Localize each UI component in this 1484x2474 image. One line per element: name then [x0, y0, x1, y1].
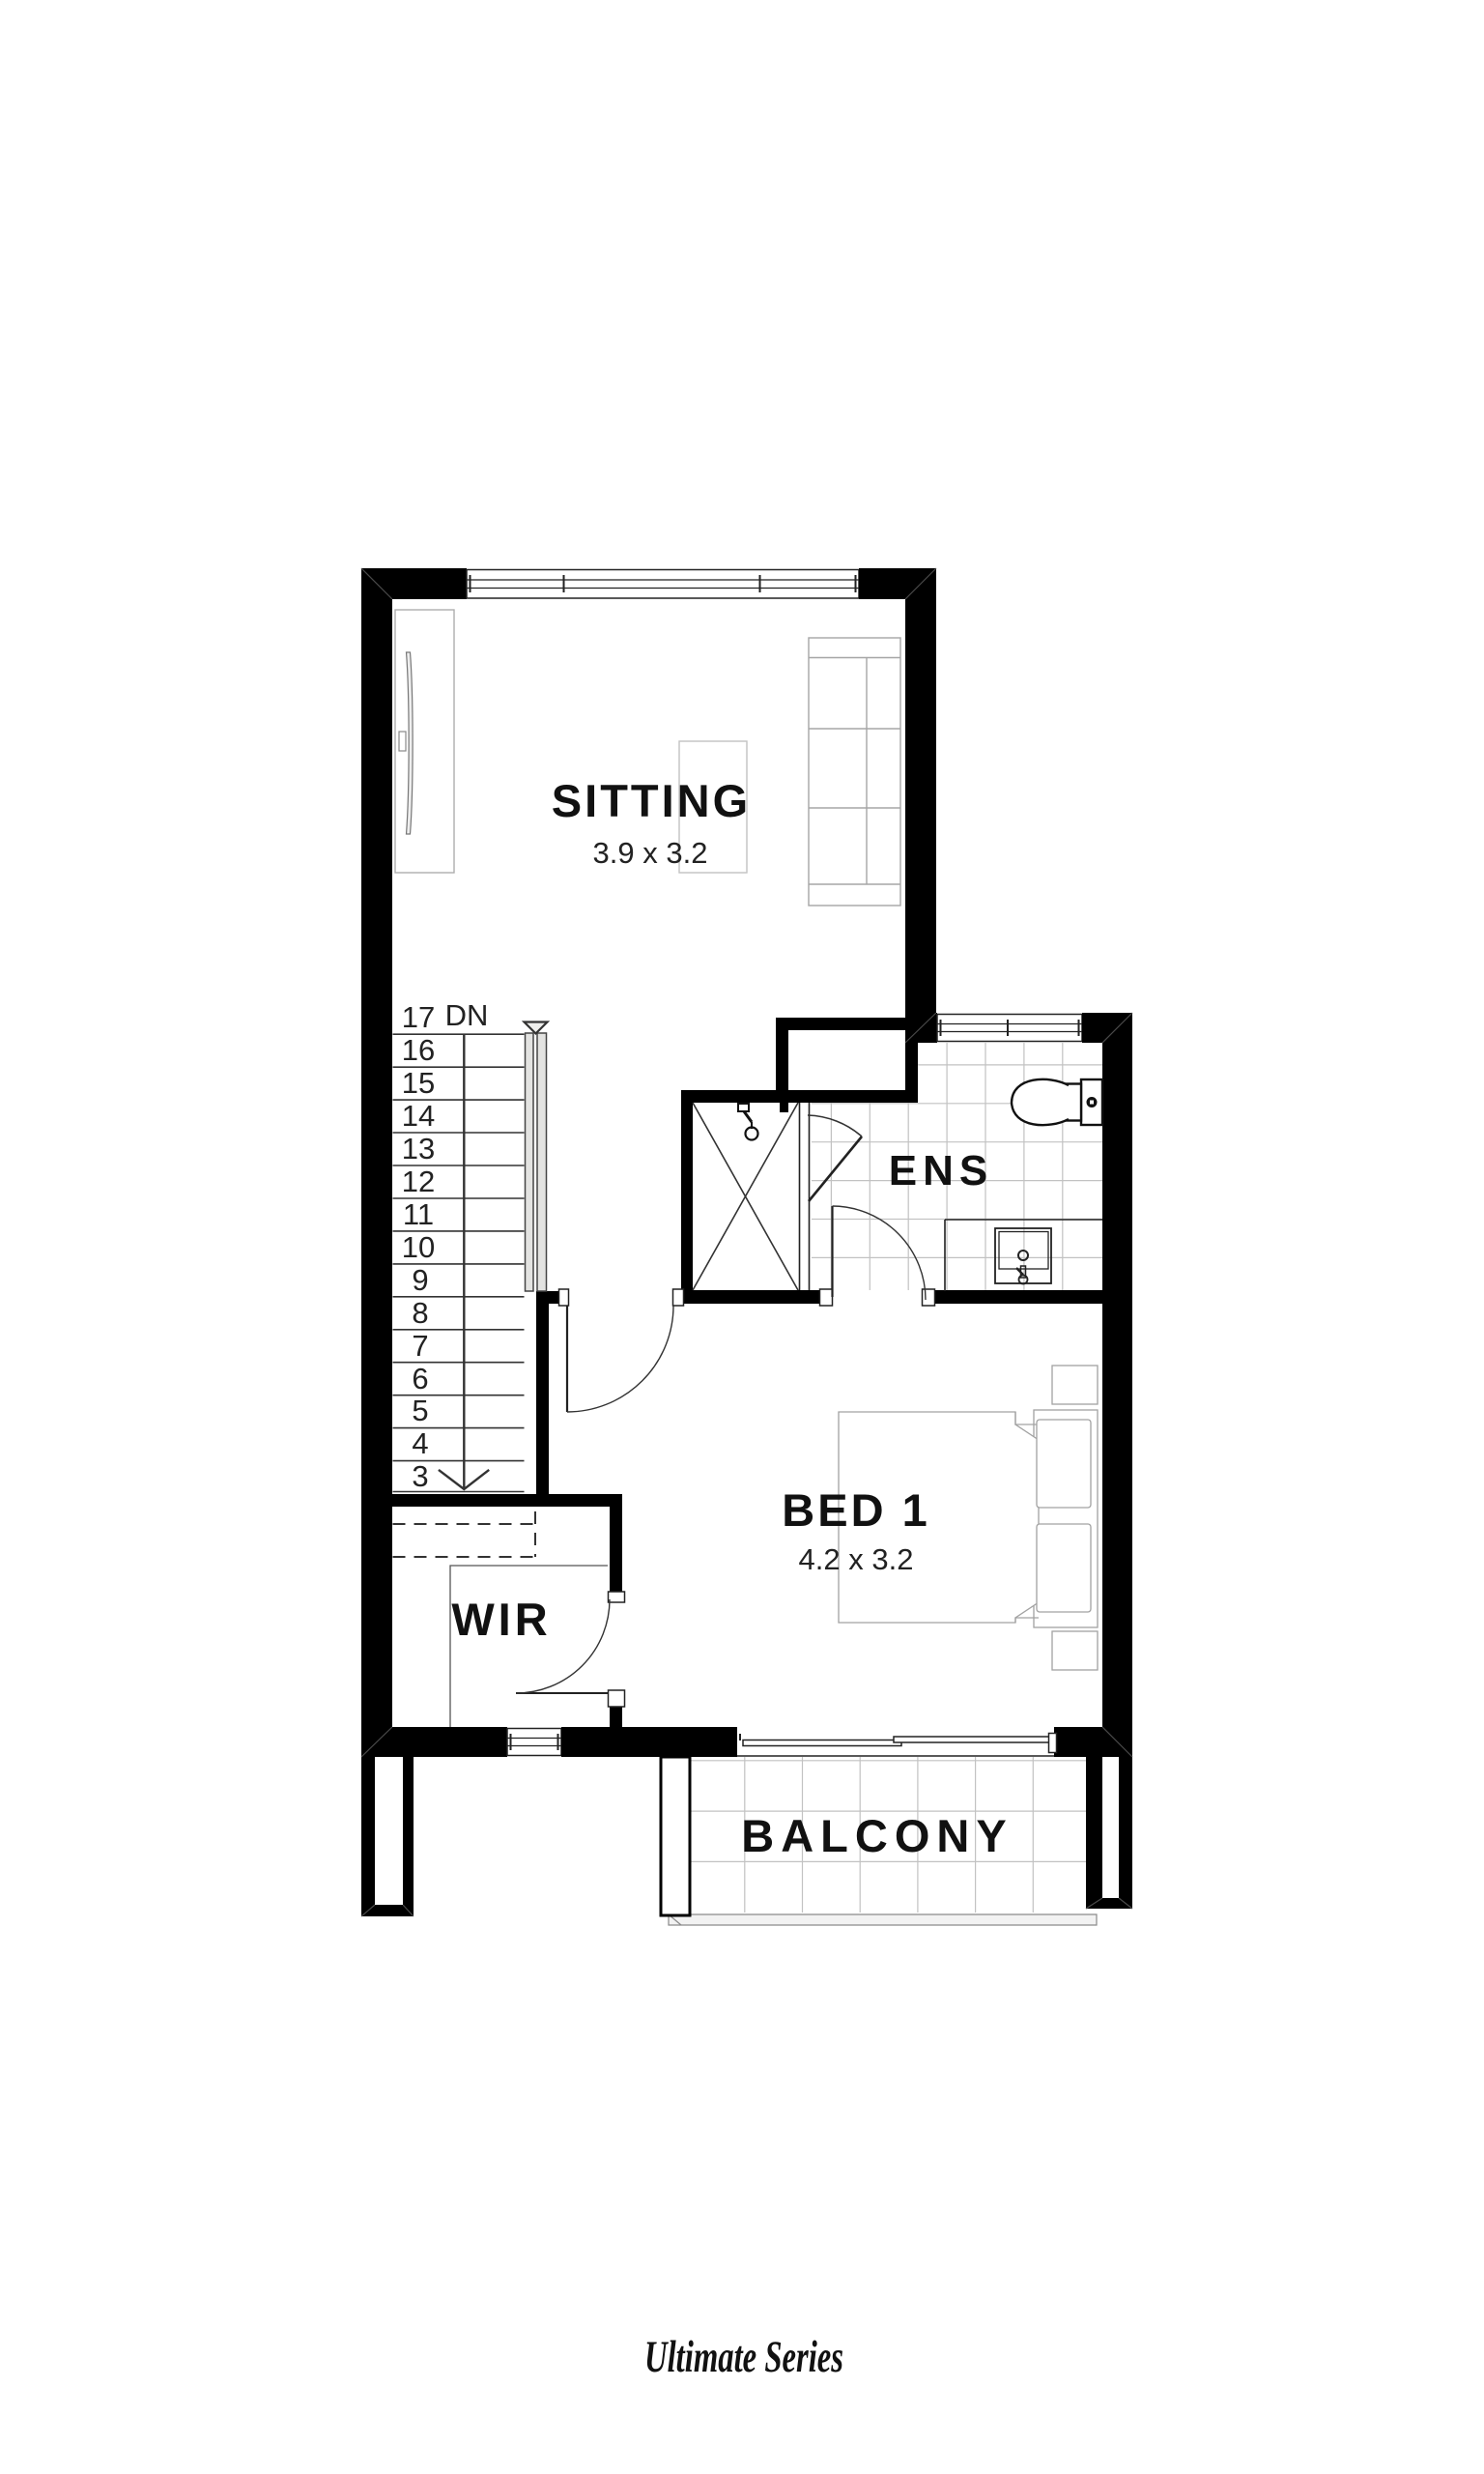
- svg-text:SITTING: SITTING: [552, 775, 751, 826]
- svg-text:BALCONY: BALCONY: [741, 1810, 1013, 1861]
- svg-text:3.9 x 3.2: 3.9 x 3.2: [593, 836, 708, 870]
- svg-text:17: 17: [402, 1000, 435, 1034]
- svg-text:4.2 x 3.2: 4.2 x 3.2: [799, 1542, 914, 1576]
- svg-text:7: 7: [412, 1329, 428, 1363]
- svg-text:10: 10: [402, 1230, 435, 1264]
- svg-text:13: 13: [402, 1132, 435, 1165]
- svg-text:14: 14: [402, 1099, 435, 1133]
- svg-text:12: 12: [402, 1165, 435, 1198]
- svg-text:3: 3: [412, 1459, 428, 1493]
- svg-text:11: 11: [403, 1197, 434, 1231]
- svg-text:ENS: ENS: [889, 1147, 993, 1194]
- svg-text:9: 9: [412, 1263, 428, 1297]
- svg-text:Ultimate Series: Ultimate Series: [644, 2332, 843, 2382]
- svg-text:8: 8: [412, 1296, 428, 1330]
- svg-text:4: 4: [412, 1426, 428, 1460]
- svg-text:15: 15: [402, 1066, 435, 1100]
- svg-text:WIR: WIR: [451, 1594, 551, 1645]
- svg-text:16: 16: [402, 1033, 435, 1067]
- svg-text:6: 6: [412, 1362, 428, 1395]
- svg-text:DN: DN: [445, 998, 489, 1032]
- svg-text:5: 5: [412, 1394, 428, 1427]
- svg-text:BED 1: BED 1: [782, 1484, 929, 1536]
